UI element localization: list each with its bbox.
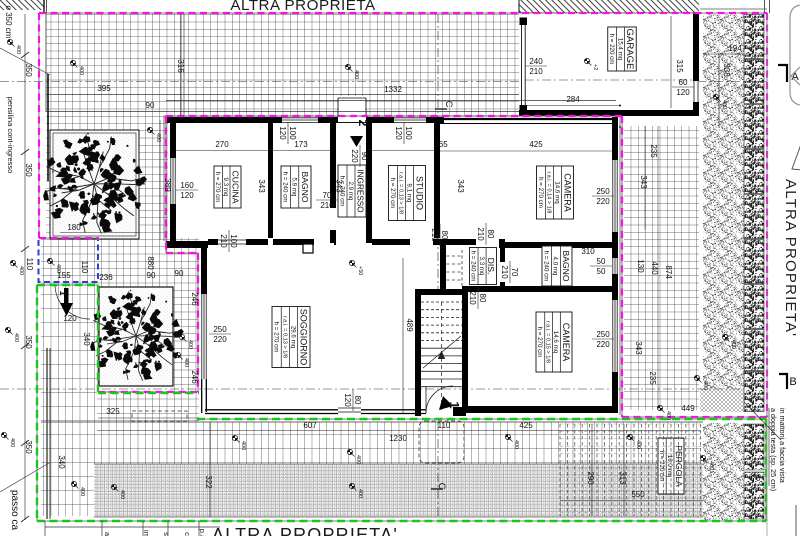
svg-text:265: 265 xyxy=(434,140,448,149)
svg-text:50: 50 xyxy=(597,257,606,266)
svg-text:1: 1 xyxy=(447,401,462,408)
svg-text:425: 425 xyxy=(519,421,533,430)
svg-text:235: 235 xyxy=(648,371,657,385)
svg-text:9,3 mq: 9,3 mq xyxy=(222,178,229,197)
svg-text:389: 389 xyxy=(163,178,172,192)
svg-text:246: 246 xyxy=(190,292,199,306)
svg-text:70: 70 xyxy=(323,191,332,200)
svg-text:316: 316 xyxy=(176,59,185,73)
svg-text:15,4 mq: 15,4 mq xyxy=(616,38,623,61)
svg-text:250: 250 xyxy=(596,330,610,339)
svg-text:240: 240 xyxy=(529,57,543,66)
svg-text:+2: +2 xyxy=(592,64,598,70)
svg-text:400: 400 xyxy=(9,438,15,447)
svg-text:210: 210 xyxy=(500,265,509,279)
svg-text:489: 489 xyxy=(405,318,414,332)
svg-text:343: 343 xyxy=(634,341,643,355)
svg-text:310: 310 xyxy=(581,247,595,256)
svg-text:h = 240 cm: h = 240 cm xyxy=(281,172,288,203)
svg-text:449: 449 xyxy=(681,404,695,413)
svg-text:180: 180 xyxy=(67,223,81,232)
svg-text:313: 313 xyxy=(618,471,627,485)
svg-text:80: 80 xyxy=(440,231,449,240)
svg-text:INGRESSO: INGRESSO xyxy=(356,169,365,212)
svg-text:70: 70 xyxy=(510,268,519,277)
svg-text:400: 400 xyxy=(708,461,714,470)
svg-text:90: 90 xyxy=(175,269,184,278)
svg-text:425: 425 xyxy=(529,140,543,149)
svg-text:CAMERA: CAMERA xyxy=(561,323,571,362)
svg-text:a doppia testa (sp. 25 cm): a doppia testa (sp. 25 cm) xyxy=(769,408,778,491)
svg-text:325: 325 xyxy=(106,407,120,416)
svg-text:110: 110 xyxy=(80,261,89,274)
svg-text:440: 440 xyxy=(650,261,659,275)
svg-text:400: 400 xyxy=(702,381,708,390)
svg-text:a: a xyxy=(103,532,112,536)
svg-text:+50: +50 xyxy=(357,266,363,275)
svg-text:pensilina cont-ingresso: pensilina cont-ingresso xyxy=(6,97,15,174)
svg-text:236: 236 xyxy=(99,273,113,282)
svg-text:h = 240 cm: h = 240 cm xyxy=(543,251,550,282)
svg-text:400: 400 xyxy=(357,489,363,498)
svg-text:h = 220 cm: h = 220 cm xyxy=(608,34,615,65)
svg-text:STUDIO: STUDIO xyxy=(414,176,424,210)
svg-text:120: 120 xyxy=(63,314,77,323)
svg-text:400: 400 xyxy=(721,100,727,109)
svg-text:o 350 cm: o 350 cm xyxy=(4,6,13,39)
svg-text:60: 60 xyxy=(679,78,688,87)
svg-text:c: c xyxy=(183,532,192,536)
svg-text:120: 120 xyxy=(180,191,194,200)
svg-text:607: 607 xyxy=(303,421,317,430)
svg-text:1332: 1332 xyxy=(384,85,402,94)
svg-text:ALTRA PROPRIETA: ALTRA PROPRIETA xyxy=(230,0,376,14)
svg-text:80: 80 xyxy=(353,396,362,405)
svg-text:235: 235 xyxy=(649,144,658,158)
svg-text:343: 343 xyxy=(335,179,344,193)
svg-text:400: 400 xyxy=(155,133,161,142)
svg-text:80: 80 xyxy=(486,230,495,239)
svg-text:880: 880 xyxy=(146,256,155,270)
svg-text:passo ca: passo ca xyxy=(9,490,20,530)
svg-text:350: 350 xyxy=(24,440,33,454)
svg-text:400: 400 xyxy=(187,340,193,349)
svg-text:r.a.i. = 0,15 > 1/8: r.a.i. = 0,15 > 1/8 xyxy=(545,321,551,363)
svg-text:s: s xyxy=(162,532,171,536)
svg-text:340: 340 xyxy=(82,332,91,346)
svg-text:343: 343 xyxy=(456,179,465,193)
svg-text:120: 120 xyxy=(394,126,403,140)
svg-text:400: 400 xyxy=(119,490,125,499)
svg-text:400: 400 xyxy=(13,333,19,342)
svg-text:h = 270 cm: h = 270 cm xyxy=(536,327,543,358)
svg-text:400: 400 xyxy=(55,264,61,273)
svg-text:400: 400 xyxy=(183,358,189,367)
svg-text:400: 400 xyxy=(78,66,84,75)
svg-text:BAGNO: BAGNO xyxy=(561,250,571,281)
svg-text:340: 340 xyxy=(57,455,66,469)
svg-text:100: 100 xyxy=(288,126,297,140)
svg-text:343: 343 xyxy=(639,175,648,189)
svg-text:120: 120 xyxy=(676,88,690,97)
svg-text:210: 210 xyxy=(529,67,543,76)
svg-text:5,9 mq: 5,9 mq xyxy=(290,178,297,197)
svg-text:400: 400 xyxy=(635,440,641,449)
svg-text:290: 290 xyxy=(586,471,595,485)
svg-text:210: 210 xyxy=(320,201,334,210)
svg-text:315: 315 xyxy=(675,59,684,73)
svg-text:395: 395 xyxy=(97,84,111,93)
svg-text:1230: 1230 xyxy=(389,434,407,443)
svg-text:ALTRA PROPRIETA': ALTRA PROPRIETA' xyxy=(212,525,398,536)
svg-text:h = 270 cm: h = 270 cm xyxy=(389,178,396,209)
svg-text:1: 1 xyxy=(58,290,68,295)
svg-text:400: 400 xyxy=(15,45,21,54)
svg-text:400: 400 xyxy=(240,441,246,450)
svg-text:BAGNO: BAGNO xyxy=(300,171,310,202)
svg-text:550: 550 xyxy=(631,490,645,499)
svg-text:210: 210 xyxy=(219,234,228,248)
svg-text:874: 874 xyxy=(664,265,673,279)
svg-text:50: 50 xyxy=(597,267,606,276)
svg-text:CAMERA: CAMERA xyxy=(562,173,572,212)
svg-text:in mattoni a faccia vista: in mattoni a faccia vista xyxy=(778,408,787,483)
svg-text:220: 220 xyxy=(350,149,359,163)
svg-text:B: B xyxy=(789,376,796,388)
svg-text:ALTRA PROPRIETA': ALTRA PROPRIETA' xyxy=(782,179,799,337)
svg-text:210: 210 xyxy=(468,291,477,305)
svg-text:90: 90 xyxy=(147,271,156,280)
svg-text:343: 343 xyxy=(257,179,266,193)
svg-text:173: 173 xyxy=(294,140,308,149)
svg-text:322: 322 xyxy=(204,475,213,489)
svg-text:350: 350 xyxy=(24,63,33,77)
svg-text:16,0 mq: 16,0 mq xyxy=(666,455,673,478)
svg-text:246: 246 xyxy=(190,370,199,384)
svg-text:250: 250 xyxy=(213,325,227,334)
svg-text:110: 110 xyxy=(438,421,451,430)
svg-text:400: 400 xyxy=(513,440,519,449)
svg-text:DIS.: DIS. xyxy=(486,258,496,275)
svg-text:90: 90 xyxy=(146,101,155,110)
svg-text:194: 194 xyxy=(728,44,742,53)
svg-text:14,6 mq: 14,6 mq xyxy=(552,331,559,354)
svg-text:120: 120 xyxy=(343,393,352,407)
svg-text:14,6 mq: 14,6 mq xyxy=(553,181,560,204)
svg-text:3,3 mq: 3,3 mq xyxy=(478,257,485,276)
svg-text:100: 100 xyxy=(229,234,238,248)
svg-text:r.a.i. = 0,14 > 1/8: r.a.i. = 0,14 > 1/8 xyxy=(545,172,551,214)
svg-text:29,6 mq: 29,6 mq xyxy=(289,326,296,349)
svg-text:220: 220 xyxy=(596,340,610,349)
svg-text:284: 284 xyxy=(566,95,580,104)
svg-text:CUCINA: CUCINA xyxy=(230,171,240,204)
svg-text:400: 400 xyxy=(730,340,736,349)
svg-text:210: 210 xyxy=(430,228,439,242)
svg-text:h = 270 cm: h = 270 cm xyxy=(214,172,221,203)
svg-text:130: 130 xyxy=(636,259,645,273)
svg-text:350: 350 xyxy=(24,335,33,349)
svg-text:90: 90 xyxy=(360,152,369,161)
svg-text:220: 220 xyxy=(213,335,227,344)
svg-text:270: 270 xyxy=(215,140,229,149)
svg-text:400: 400 xyxy=(355,455,361,464)
svg-text:h = 270 cm: h = 270 cm xyxy=(537,177,544,208)
svg-text:400: 400 xyxy=(665,411,671,420)
svg-text:400: 400 xyxy=(353,70,359,79)
svg-text:160: 160 xyxy=(180,181,194,190)
svg-text:im: im xyxy=(142,530,151,536)
svg-text:350: 350 xyxy=(24,163,33,177)
svg-text:r.a.i. = 0,13 > 1/8: r.a.i. = 0,13 > 1/8 xyxy=(281,316,287,358)
svg-text:120: 120 xyxy=(278,126,287,140)
svg-text:4,0 mq: 4,0 mq xyxy=(552,257,559,276)
svg-text:2,9 mq: 2,9 mq xyxy=(347,182,354,201)
svg-text:80: 80 xyxy=(478,294,487,303)
svg-text:400: 400 xyxy=(18,266,24,275)
svg-text:400: 400 xyxy=(79,487,85,496)
svg-text:250: 250 xyxy=(596,187,610,196)
svg-text:110: 110 xyxy=(25,258,34,271)
svg-text:PERGOLA: PERGOLA xyxy=(674,445,684,487)
svg-text:100: 100 xyxy=(404,126,413,140)
svg-text:70: 70 xyxy=(752,474,761,483)
svg-text:h = 270 cm: h = 270 cm xyxy=(272,322,279,353)
svg-text:r.a.i. = 0,13 > 1/8: r.a.i. = 0,13 > 1/8 xyxy=(397,172,403,214)
svg-text:h = 240 cm: h = 240 cm xyxy=(470,251,477,282)
svg-text:C: C xyxy=(443,101,454,108)
svg-text:338: 338 xyxy=(722,63,731,77)
svg-text:9,1 mq: 9,1 mq xyxy=(405,184,412,203)
svg-text:SOGGIORNO: SOGGIORNO xyxy=(299,309,309,366)
svg-text:210: 210 xyxy=(476,227,485,241)
svg-text:GARAGE: GARAGE xyxy=(624,28,635,69)
svg-text:p.a: p.a xyxy=(198,529,207,536)
svg-text:220: 220 xyxy=(596,197,610,206)
